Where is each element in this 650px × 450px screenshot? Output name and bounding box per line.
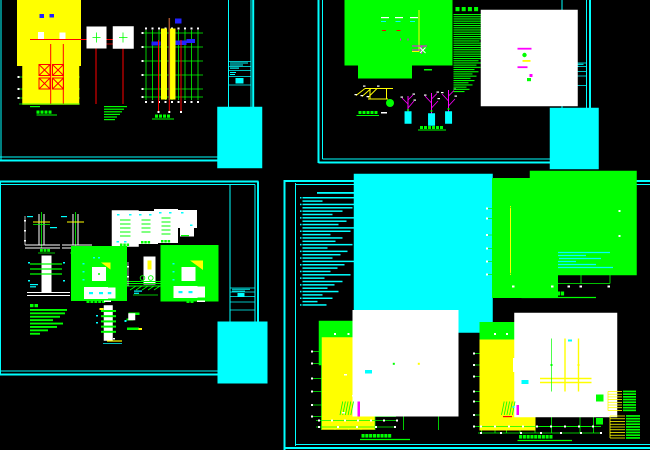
riser-labels [413, 94, 416, 95]
9 [242, 340, 246, 342]
detail-title [141, 241, 144, 244]
9 [240, 146, 244, 148]
grid-ticks [551, 333, 553, 335]
13 [397, 286, 403, 287]
notes-text [303, 271, 331, 273]
drawing-title [37, 111, 40, 114]
13 [429, 236, 435, 237]
dim-ticks [436, 380, 438, 382]
dim-ticks [93, 257, 95, 259]
grid-ticks [18, 97, 20, 99]
13 [397, 253, 403, 254]
meter-box-text [375, 58, 396, 60]
9 [480, 426, 482, 428]
beam-web [130, 315, 134, 319]
13 [418, 293, 424, 294]
10 [507, 53, 510, 54]
7 [500, 432, 502, 434]
notes-text [303, 200, 323, 202]
pipe-chase [365, 370, 372, 374]
13 [407, 276, 413, 277]
notes-text [303, 241, 336, 243]
circuit-text [396, 21, 401, 22]
dim-ticks [96, 315, 98, 317]
legend-symbol [527, 78, 531, 81]
notes-text [303, 220, 347, 222]
dim-ticks [24, 220, 26, 222]
telecom-branch [425, 96, 432, 103]
13 [440, 260, 446, 261]
grid-ticks [311, 404, 313, 406]
9 [191, 101, 193, 103]
circuit-text [410, 17, 418, 18]
titleblock-stamp [236, 78, 244, 84]
9 [230, 133, 233, 135]
circuit-text [397, 30, 401, 31]
notes-text [303, 294, 323, 296]
dim-ticks [83, 271, 85, 273]
grid-ticks [142, 32, 144, 34]
10 [507, 45, 510, 46]
5 [248, 368, 252, 370]
design-notes-text [454, 87, 467, 88]
design-notes-text [454, 47, 486, 48]
notes-text [303, 210, 343, 212]
10 [524, 58, 528, 59]
13 [450, 230, 456, 231]
dim-ticks [424, 200, 426, 202]
grid-ticks [473, 426, 475, 428]
notes-text [303, 231, 351, 233]
drawing-title-first-floor [388, 434, 391, 438]
9 [191, 28, 193, 30]
ground-symbol [386, 99, 394, 107]
terminal-box [406, 113, 410, 122]
riser-labels [367, 96, 370, 97]
grid-ticks [180, 111, 182, 113]
dim-ticks [173, 263, 175, 265]
notes-text [30, 333, 40, 335]
grid-ticks [334, 333, 336, 335]
detail-title [40, 249, 43, 252]
5 [579, 154, 583, 156]
5 [318, 426, 320, 428]
telecom-branch [432, 101, 439, 108]
dim-ticks [125, 320, 127, 322]
detail-title [47, 249, 50, 252]
9 [626, 437, 640, 439]
sheet-plumbing-plans [285, 180, 650, 450]
7 [580, 432, 582, 434]
9 [230, 137, 233, 139]
drawing-title [440, 126, 443, 129]
roof-label [519, 266, 529, 268]
13 [397, 293, 403, 294]
drawing-title-roof [523, 292, 526, 296]
roof-label [519, 214, 529, 216]
titleblock-text [230, 65, 243, 66]
notes-text [303, 251, 348, 253]
13 [450, 263, 456, 264]
13 [407, 236, 413, 237]
schedule-cell [196, 290, 202, 295]
telecom-branch [449, 99, 456, 106]
9 [508, 426, 510, 428]
7 [520, 432, 522, 434]
detail-label [134, 293, 139, 294]
notes-heading [30, 304, 34, 307]
13 [429, 230, 435, 231]
9 [152, 101, 154, 103]
9 [626, 421, 640, 423]
drawing-title-first-floor [381, 434, 384, 438]
riser-labels [455, 96, 458, 97]
grid-ticks [486, 261, 488, 263]
9 [232, 360, 235, 362]
dim-ticks [98, 257, 100, 259]
5 [356, 426, 358, 428]
notes-text [303, 237, 343, 239]
9 [626, 423, 640, 425]
design-notes-text [454, 91, 465, 92]
dim-ticks [619, 235, 621, 237]
13 [390, 269, 393, 270]
titleblock-text [232, 291, 245, 292]
junction-dot [431, 110, 433, 112]
drawing-title-roof [553, 292, 556, 296]
13 [397, 260, 403, 261]
drawing-title [167, 115, 170, 118]
5 [579, 122, 583, 124]
design-notes-text [454, 76, 477, 77]
drawing-title-roof [531, 292, 534, 296]
design-notes-text [454, 34, 482, 35]
design-notes-text [454, 18, 483, 19]
cell-text [189, 291, 193, 293]
design-notes-text [454, 60, 479, 61]
detail-title [87, 300, 90, 303]
design-notes-text [454, 69, 475, 70]
grid-ticks [534, 333, 536, 335]
13 [429, 263, 435, 264]
dim-ticks [113, 338, 115, 340]
9 [230, 120, 233, 122]
9 [145, 28, 147, 30]
10 [543, 71, 547, 72]
telecom-branch [442, 94, 449, 101]
legend-symbol [530, 74, 533, 77]
17 [300, 244, 302, 246]
detail-title [161, 240, 164, 243]
design-notes-text [454, 80, 475, 81]
drawing-title-roof [534, 292, 537, 296]
13 [390, 236, 393, 237]
13 [407, 263, 413, 264]
drawing-title [420, 126, 423, 129]
notes-text [303, 291, 339, 293]
vent-mark [568, 340, 572, 342]
10 [524, 75, 528, 76]
telecom-branch [408, 95, 413, 100]
7 [396, 420, 398, 422]
9 [626, 429, 640, 431]
floor-drain [393, 363, 395, 365]
13 [390, 230, 393, 231]
7 [540, 432, 542, 434]
9 [230, 150, 233, 152]
hatch-fill [139, 328, 143, 330]
design-notes-text [454, 84, 473, 85]
titleblock-stamp [238, 293, 245, 297]
door-marks [344, 374, 347, 376]
detail-title [120, 244, 123, 247]
small-detail [182, 215, 192, 223]
drawing-title [155, 115, 158, 118]
13 [450, 269, 456, 270]
10 [524, 40, 528, 41]
notes-text [303, 257, 333, 259]
13 [418, 220, 424, 221]
17 [300, 231, 302, 233]
10 [507, 67, 510, 68]
grid-ticks [473, 376, 475, 378]
device-fill [427, 41, 433, 45]
hatch-fill [100, 308, 104, 310]
dim-ticks [124, 241, 127, 243]
13 [440, 233, 446, 234]
grid-ticks [142, 46, 144, 48]
dim-ticks [173, 279, 175, 281]
13 [407, 269, 413, 270]
10 [524, 45, 528, 46]
grid-ticks [473, 391, 475, 393]
13 [450, 223, 456, 224]
detail-title [168, 240, 171, 243]
telecom-branch [449, 91, 455, 97]
13 [397, 233, 403, 234]
5 [579, 138, 583, 140]
drawing-title [159, 115, 162, 118]
5 [246, 120, 250, 122]
detail-label [30, 286, 36, 287]
13 [429, 269, 435, 270]
notes-text [303, 227, 358, 229]
17 [300, 197, 302, 199]
13 [440, 286, 446, 287]
9 [564, 146, 567, 148]
grid-ticks [142, 74, 144, 76]
notes-text [303, 197, 358, 199]
9 [197, 101, 199, 103]
notes-text [303, 204, 361, 206]
7 [344, 420, 346, 422]
design-notes-heading [462, 7, 466, 11]
grid-ticks [506, 333, 508, 335]
drawing-title-roof [557, 292, 560, 296]
13 [390, 210, 393, 211]
13 [407, 283, 413, 284]
notes-text [303, 287, 328, 289]
9 [564, 150, 567, 152]
8 [623, 404, 636, 406]
detail-label [50, 227, 57, 228]
hatch-lines [154, 286, 160, 290]
13 [440, 266, 446, 267]
9 [230, 146, 233, 148]
13 [418, 273, 424, 274]
floor-drain [418, 363, 420, 365]
grid-ticks [374, 333, 376, 335]
8 [623, 399, 636, 401]
drawing-title [424, 126, 427, 129]
dim-ticks [149, 214, 152, 216]
9 [242, 348, 246, 350]
grid-ticks [311, 416, 313, 418]
grid-ticks [473, 353, 475, 355]
9 [171, 101, 173, 103]
13 [407, 223, 413, 224]
grid-ticks [18, 88, 20, 90]
dim-text [30, 106, 40, 107]
circuit-text [395, 27, 401, 28]
detail-label [30, 284, 38, 285]
7 [383, 420, 385, 422]
design-notes-text [454, 14, 485, 15]
detail-label [181, 235, 189, 236]
drawing-title [163, 115, 166, 118]
grid-ticks [580, 286, 583, 288]
detail-title [187, 300, 190, 303]
7 [560, 432, 562, 434]
dim-ticks [24, 240, 26, 242]
13 [450, 283, 456, 284]
drawing-title [371, 111, 374, 114]
grid-ticks [512, 286, 515, 288]
drawing-title-roof [538, 292, 541, 296]
column-fill [187, 39, 196, 43]
drawing-title [393, 68, 396, 71]
17 [300, 284, 302, 286]
5 [246, 146, 250, 148]
column-fill [152, 42, 161, 46]
13 [429, 283, 435, 284]
drawing-title-roof [542, 292, 545, 296]
13 [450, 250, 456, 251]
column-fill [40, 14, 45, 18]
13 [407, 210, 413, 211]
design-notes-text [454, 58, 486, 59]
drain-dots [595, 223, 597, 225]
9 [578, 426, 580, 428]
grid-ticks [142, 60, 144, 62]
13 [418, 227, 424, 228]
13 [390, 283, 393, 284]
13 [418, 213, 424, 214]
9 [573, 138, 577, 140]
10 [543, 58, 547, 59]
drawing-title-second-floor [538, 435, 541, 439]
riser-labels [438, 98, 441, 99]
scale-text [381, 112, 387, 114]
10 [543, 75, 547, 76]
detail-title [164, 240, 167, 243]
10 [543, 62, 547, 63]
drawing-title-first-floor [377, 434, 380, 438]
cad-model-space[interactable] [0, 0, 650, 450]
grid-ticks [142, 88, 144, 90]
5 [246, 129, 250, 131]
vent-mark [513, 406, 515, 408]
10 [543, 40, 547, 41]
notes-text [303, 281, 343, 283]
grid-ticks [168, 111, 170, 113]
9 [550, 426, 552, 428]
13 [418, 286, 424, 287]
notes-text [104, 116, 117, 117]
dim-ticks [139, 214, 142, 216]
9 [145, 101, 147, 103]
dim-ticks [181, 212, 184, 214]
9 [158, 28, 160, 30]
10 [543, 67, 547, 68]
riser-labels [361, 95, 364, 96]
design-notes-text [454, 56, 482, 57]
door-marks [352, 395, 355, 397]
drawing-title-roof [550, 292, 553, 296]
grid-ticks [311, 351, 313, 353]
riser-labels [437, 92, 440, 93]
9 [564, 122, 567, 124]
9 [573, 150, 577, 152]
17 [300, 224, 302, 226]
hall-outline [379, 337, 432, 391]
7 [370, 420, 372, 422]
circuit-text [395, 17, 403, 18]
notes-text [303, 247, 328, 249]
9 [240, 129, 244, 131]
grid-ticks [473, 364, 475, 366]
13 [450, 289, 456, 290]
cad-canvas[interactable] [0, 0, 650, 450]
hall-outline [540, 339, 592, 392]
13 [390, 289, 393, 290]
drawing-title [436, 126, 439, 129]
drawing-title [397, 68, 400, 71]
notes-text [30, 326, 57, 328]
13 [390, 243, 393, 244]
10 [507, 49, 510, 50]
17 [300, 257, 302, 259]
notes-text [104, 114, 120, 115]
9 [564, 142, 567, 144]
notes-text [303, 277, 325, 279]
column-core [185, 271, 192, 278]
column-fill [175, 19, 182, 24]
dim-ticks [169, 212, 172, 214]
13 [440, 227, 446, 228]
13 [418, 233, 424, 234]
notes-text [303, 304, 327, 306]
grid-ticks [473, 414, 475, 416]
5 [337, 426, 339, 428]
notes-text [30, 329, 48, 331]
5 [246, 137, 250, 139]
dim-ticks [127, 276, 129, 278]
9 [573, 146, 577, 148]
detail-label [134, 291, 142, 292]
keynote-tick [599, 391, 601, 393]
drawing-title [45, 111, 48, 114]
